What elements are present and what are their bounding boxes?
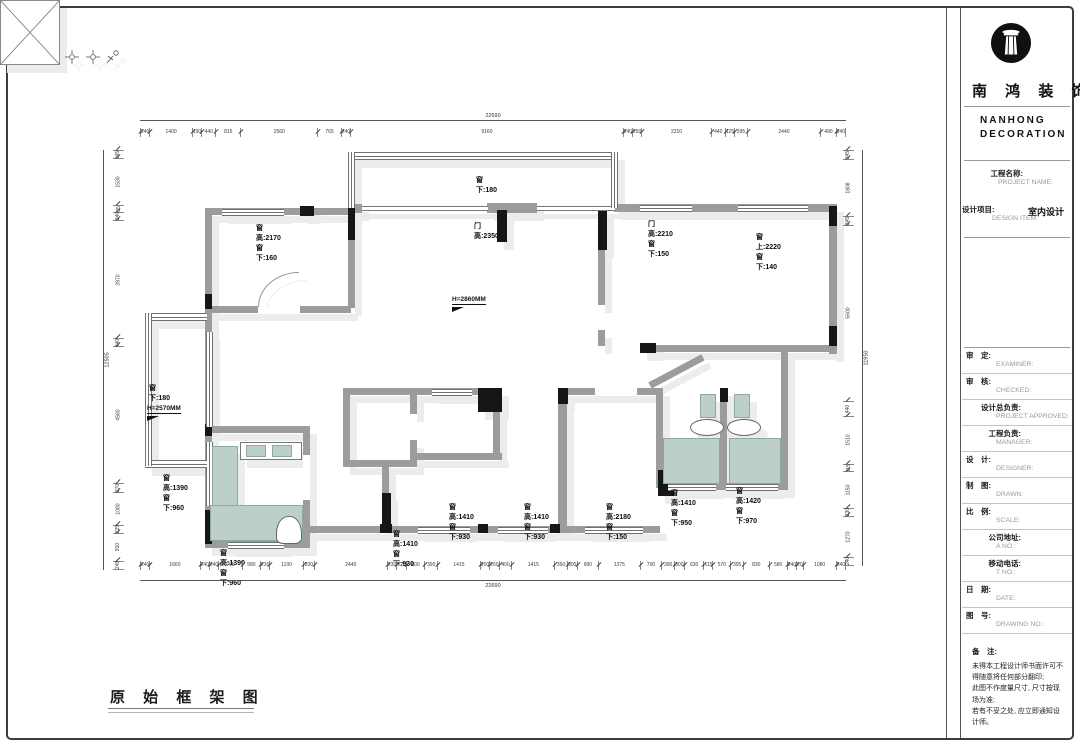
dim-segment: 2440 [314, 561, 387, 570]
span: 12505 [105, 352, 111, 367]
wall [410, 440, 417, 467]
dim-segment: 765 [317, 128, 341, 137]
title-block-field: 设计总负责: PROJECT APPROVED: [962, 400, 1072, 426]
wall [598, 330, 605, 346]
colm [348, 208, 355, 240]
circle [114, 51, 118, 55]
tb-enl: DRAWN: [966, 491, 1072, 498]
balcony-rail [348, 152, 355, 208]
dim-segment: 3970 [113, 220, 124, 339]
wall [343, 388, 417, 395]
dim-total-top: 22690 [140, 120, 846, 121]
colm [550, 524, 560, 533]
tb-cnl: 审 核: [966, 376, 1072, 387]
dim-segment: 240 [836, 128, 846, 137]
floor-plan-walls [0, 0, 123, 70]
dim-segment: 5600 [843, 225, 854, 401]
colm [478, 388, 502, 412]
tb-enl: T NO.: [966, 569, 1072, 576]
elevation-label: H=2860MM [452, 296, 486, 305]
title-block-field: 审 核: CHECKED: [962, 374, 1072, 400]
divider [964, 237, 1070, 238]
window-height-annotation: 窗高:2170 窗下:160 [256, 224, 281, 265]
span: 3970 [116, 274, 122, 285]
title-block-field: 设 计: DESIGNER: [962, 452, 1072, 478]
colm [720, 388, 728, 402]
title-block-field: 图 号: DRAWING NO.: [962, 608, 1072, 634]
dim-segment: 580 [769, 561, 787, 570]
colm [829, 326, 837, 346]
tb-enl: MANAGER: [966, 439, 1072, 446]
dim-segment: 1100 [269, 561, 303, 570]
circle [70, 55, 75, 60]
wall [410, 388, 417, 414]
wall [343, 388, 350, 467]
wall [343, 460, 417, 467]
tb-cnl: 日 期: [966, 584, 1072, 595]
dim-total-bottom: 22690 [140, 580, 846, 581]
span: 11950 [863, 351, 869, 366]
window-height-annotation: 窗上:2220 窗下:140 [756, 233, 781, 274]
project-name-field: 工程名称: PROJECT NAME: [968, 168, 1068, 186]
colm [478, 524, 488, 533]
toilet-cistern [700, 394, 716, 418]
wall [640, 345, 837, 352]
dim-segment: 830 [743, 561, 769, 570]
gap [303, 455, 310, 500]
tb-cnl: 制 图: [966, 480, 1072, 491]
brand-name-cn: 南 鸿 装 饰 [972, 80, 1068, 101]
div: NANHONG [980, 114, 1066, 128]
gap [258, 306, 300, 313]
sheet-title: 原 始 框 架 图 [110, 686, 265, 707]
div: 未得本工程设计师书面许可不得随意将任何部分翻印;此图不作度量尺寸, 尺寸按现场为… [972, 661, 1068, 728]
window-height-annotation: 门高:2210 窗下:150 [648, 220, 673, 261]
window-height-annotation: 窗高:1390 窗下:960 [163, 474, 188, 515]
dim-chain-right: 24518082455600440151011511502301270240 [843, 150, 854, 566]
colm [640, 343, 656, 353]
window-height-annotation: 窗高:1410 窗下:950 [671, 489, 696, 530]
notes-label: 备 注: [972, 646, 1068, 657]
dim-segment: 580 [242, 561, 260, 570]
title-block-field: 审 定: EXAMINER: [962, 348, 1072, 374]
span: 245 [116, 561, 122, 569]
circle [91, 55, 96, 60]
tb-enl: CHECKED: [966, 387, 1072, 394]
span: 22690 [485, 113, 500, 119]
balcony-rail [145, 460, 207, 468]
dim-segment: 700 [640, 561, 662, 570]
dim-chain-left: 245153085240397024045802701080225910245 [113, 150, 124, 570]
span: 1270 [846, 531, 852, 542]
tb-cnl: 移动电话: [966, 558, 1072, 569]
tb-enl: A NO.: [966, 543, 1072, 550]
sink [246, 445, 266, 457]
thinw [537, 206, 615, 211]
sheet-title-underline [108, 712, 254, 713]
tb-cnl: 设计总负责: [966, 402, 1072, 413]
span: 22690 [485, 583, 500, 589]
tb-enl: DATE: [966, 595, 1072, 602]
note-line: 场为准; [972, 695, 1068, 706]
span: 1808 [846, 182, 852, 193]
tb-cnl: 审 定: [966, 350, 1072, 361]
dim-segment: 2440 [747, 128, 820, 137]
title-block-field: 比 例: SCALE: [962, 504, 1072, 530]
toilet [276, 516, 302, 544]
win [222, 209, 284, 216]
path [1005, 36, 1017, 54]
span: 1530 [116, 176, 122, 187]
elevation-label: H=2570MM [147, 405, 181, 414]
dim-segment: 1530 [113, 158, 124, 204]
div: DECORATION [980, 128, 1066, 142]
tb-enl: EXAMINER: [966, 361, 1072, 368]
colm [829, 206, 837, 226]
note-line: 得随意将任何部分翻印; [972, 672, 1068, 683]
win [228, 542, 284, 549]
shower-floor [729, 438, 781, 484]
win [432, 389, 472, 396]
colm [205, 294, 212, 309]
window-height-annotation: 窗高:2180 窗下:150 [606, 503, 631, 544]
sheet-title-underline [108, 708, 254, 709]
window-height-annotation: 窗高:1410 窗下:930 [449, 503, 474, 544]
wall [598, 250, 605, 305]
balcony-rail [348, 152, 616, 160]
toilet [690, 419, 724, 436]
window-height-annotation: 窗高:1410 窗下:930 [524, 503, 549, 544]
dim-segment: 680 [577, 561, 598, 570]
shower-head-icon [105, 47, 123, 65]
dim-segment: 1660 [149, 561, 199, 570]
dim-total-left: 12505 [103, 150, 104, 570]
elevation-triangle-icon [147, 416, 159, 421]
note-line: 计师。 [972, 717, 1068, 728]
shower-head-icon [64, 49, 80, 65]
span: 1510 [846, 435, 852, 446]
gap [595, 388, 637, 395]
note-line: 若有不妥之处, 应立即通知设 [972, 706, 1068, 717]
tb-cnl: 图 号: [966, 610, 1072, 621]
dim-segment: 9160 [350, 128, 622, 137]
dim-segment: 1150 [843, 471, 854, 508]
dim-segment: 1415 [511, 561, 554, 570]
toilet [727, 419, 761, 436]
rect [1004, 33, 1018, 35]
title-block-field: 移动电话: T NO.: [962, 556, 1072, 582]
divider [964, 160, 1070, 161]
tb-enl: DESIGNER: [966, 465, 1072, 472]
colm [598, 208, 607, 250]
title-block-field: 工程负责: MANAGER: [962, 426, 1072, 452]
diag [648, 354, 704, 388]
colm [380, 524, 392, 533]
wall [205, 426, 310, 433]
tb-cnl: 设 计: [966, 454, 1072, 465]
dim-segment: 1808 [843, 159, 854, 216]
elevation-triangle-icon [452, 307, 464, 312]
dim-segment: 240 [843, 557, 854, 567]
balcony-rail [611, 152, 618, 208]
dim-segment: 245 [113, 561, 124, 570]
dim-segment: 2560 [240, 128, 317, 137]
note-line: 此图不作度量尺寸, 尺寸按现 [972, 683, 1068, 694]
drawing-sheet: 窗高:2170 窗下:160窗下:180门高:2350门高:2210 窗下:15… [0, 0, 1080, 746]
dim-segment: 815 [215, 128, 240, 137]
dim-segment: 1270 [843, 516, 854, 557]
dim-segment: 1400 [149, 128, 191, 137]
span: 1080 [116, 504, 122, 515]
tb-enl: SCALE: [966, 517, 1072, 524]
nanhong-column-logo [990, 22, 1032, 64]
title-block: 南 鸿 装 饰 NANHONGDECORATION 工程名称: PROJECT … [962, 8, 1072, 738]
span: 910 [116, 543, 122, 551]
dim-chain-top: 2401400190440815256076524091602402502310… [140, 128, 846, 137]
tb-enl: DRAWING NO.: [966, 621, 1072, 628]
win [640, 205, 692, 212]
tb-enl: PROJECT NAME: [968, 179, 1068, 186]
shower-head-icon [85, 49, 101, 65]
colm [300, 206, 314, 216]
title-block-field: 日 期: DATE: [962, 582, 1072, 608]
elevation-marker: H=2860MM [452, 288, 522, 312]
dim-segment: 2310 [641, 128, 710, 137]
balcony-rail [145, 313, 207, 321]
span: 1150 [845, 484, 851, 495]
window-height-annotation: 窗高:1420 窗下:970 [736, 487, 761, 528]
dim-segment: 1080 [113, 492, 124, 525]
elevation-marker: H=2570MM [147, 397, 217, 421]
title-block-fields: 审 定: EXAMINER: 审 核: CHECKED: 设计总负责: PROJ… [962, 348, 1072, 634]
shower-floor [663, 438, 720, 484]
door-swing-arc [258, 272, 299, 307]
win [738, 205, 808, 212]
title-block-field: 公司地址: A NO.: [962, 530, 1072, 556]
span: 5600 [846, 308, 852, 319]
span: 240 [846, 557, 852, 565]
divider [964, 106, 1070, 107]
dim-segment: 1510 [843, 416, 854, 464]
tb-cnl: 工程名称: [968, 168, 1068, 179]
tb-cnl: 比 例: [966, 506, 1072, 517]
wall [558, 388, 567, 528]
span: 4580 [116, 410, 122, 421]
window-height-annotation: 门高:2350 [474, 222, 499, 242]
brand-name-en: NANHONGDECORATION [980, 114, 1066, 141]
dim-segment: 4580 [113, 346, 124, 483]
dim-segment: 1415 [437, 561, 480, 570]
wall [781, 345, 788, 490]
wall [417, 453, 502, 460]
dim-segment: 1080 [803, 561, 836, 570]
colm [558, 388, 568, 404]
title-block-field: 制 图: DRAWN: [962, 478, 1072, 504]
wall [720, 388, 727, 488]
window-height-annotation: 窗下:180 [476, 176, 497, 196]
design-item-value: 室内设计 [1028, 205, 1064, 218]
tb-cnl: 公司地址: [966, 532, 1072, 543]
dim-segment: 1375 [598, 561, 640, 570]
toilet-cistern [734, 394, 750, 418]
elevator-shaft [0, 0, 60, 65]
dim-segment: 765 [218, 561, 242, 570]
tb-enl: PROJECT APPROVED: [966, 413, 1072, 420]
tb-cnl: 工程负责: [966, 428, 1072, 439]
sink [272, 445, 292, 457]
thinw [362, 206, 488, 211]
wall [487, 203, 537, 213]
floor-plan: 窗高:2170 窗下:160窗下:180门高:2350门高:2210 窗下:15… [0, 0, 1080, 746]
notes-block: 备 注: 未得本工程设计师书面许可不得随意将任何部分翻印;此图不作度量尺寸, 尺… [972, 646, 1068, 728]
dim-total-right: 11950 [862, 150, 863, 566]
dim-chain-bottom: 2401660240240765580230110033024402302206… [140, 561, 846, 570]
note-line: 未得本工程设计师书面许可不 [972, 661, 1068, 672]
